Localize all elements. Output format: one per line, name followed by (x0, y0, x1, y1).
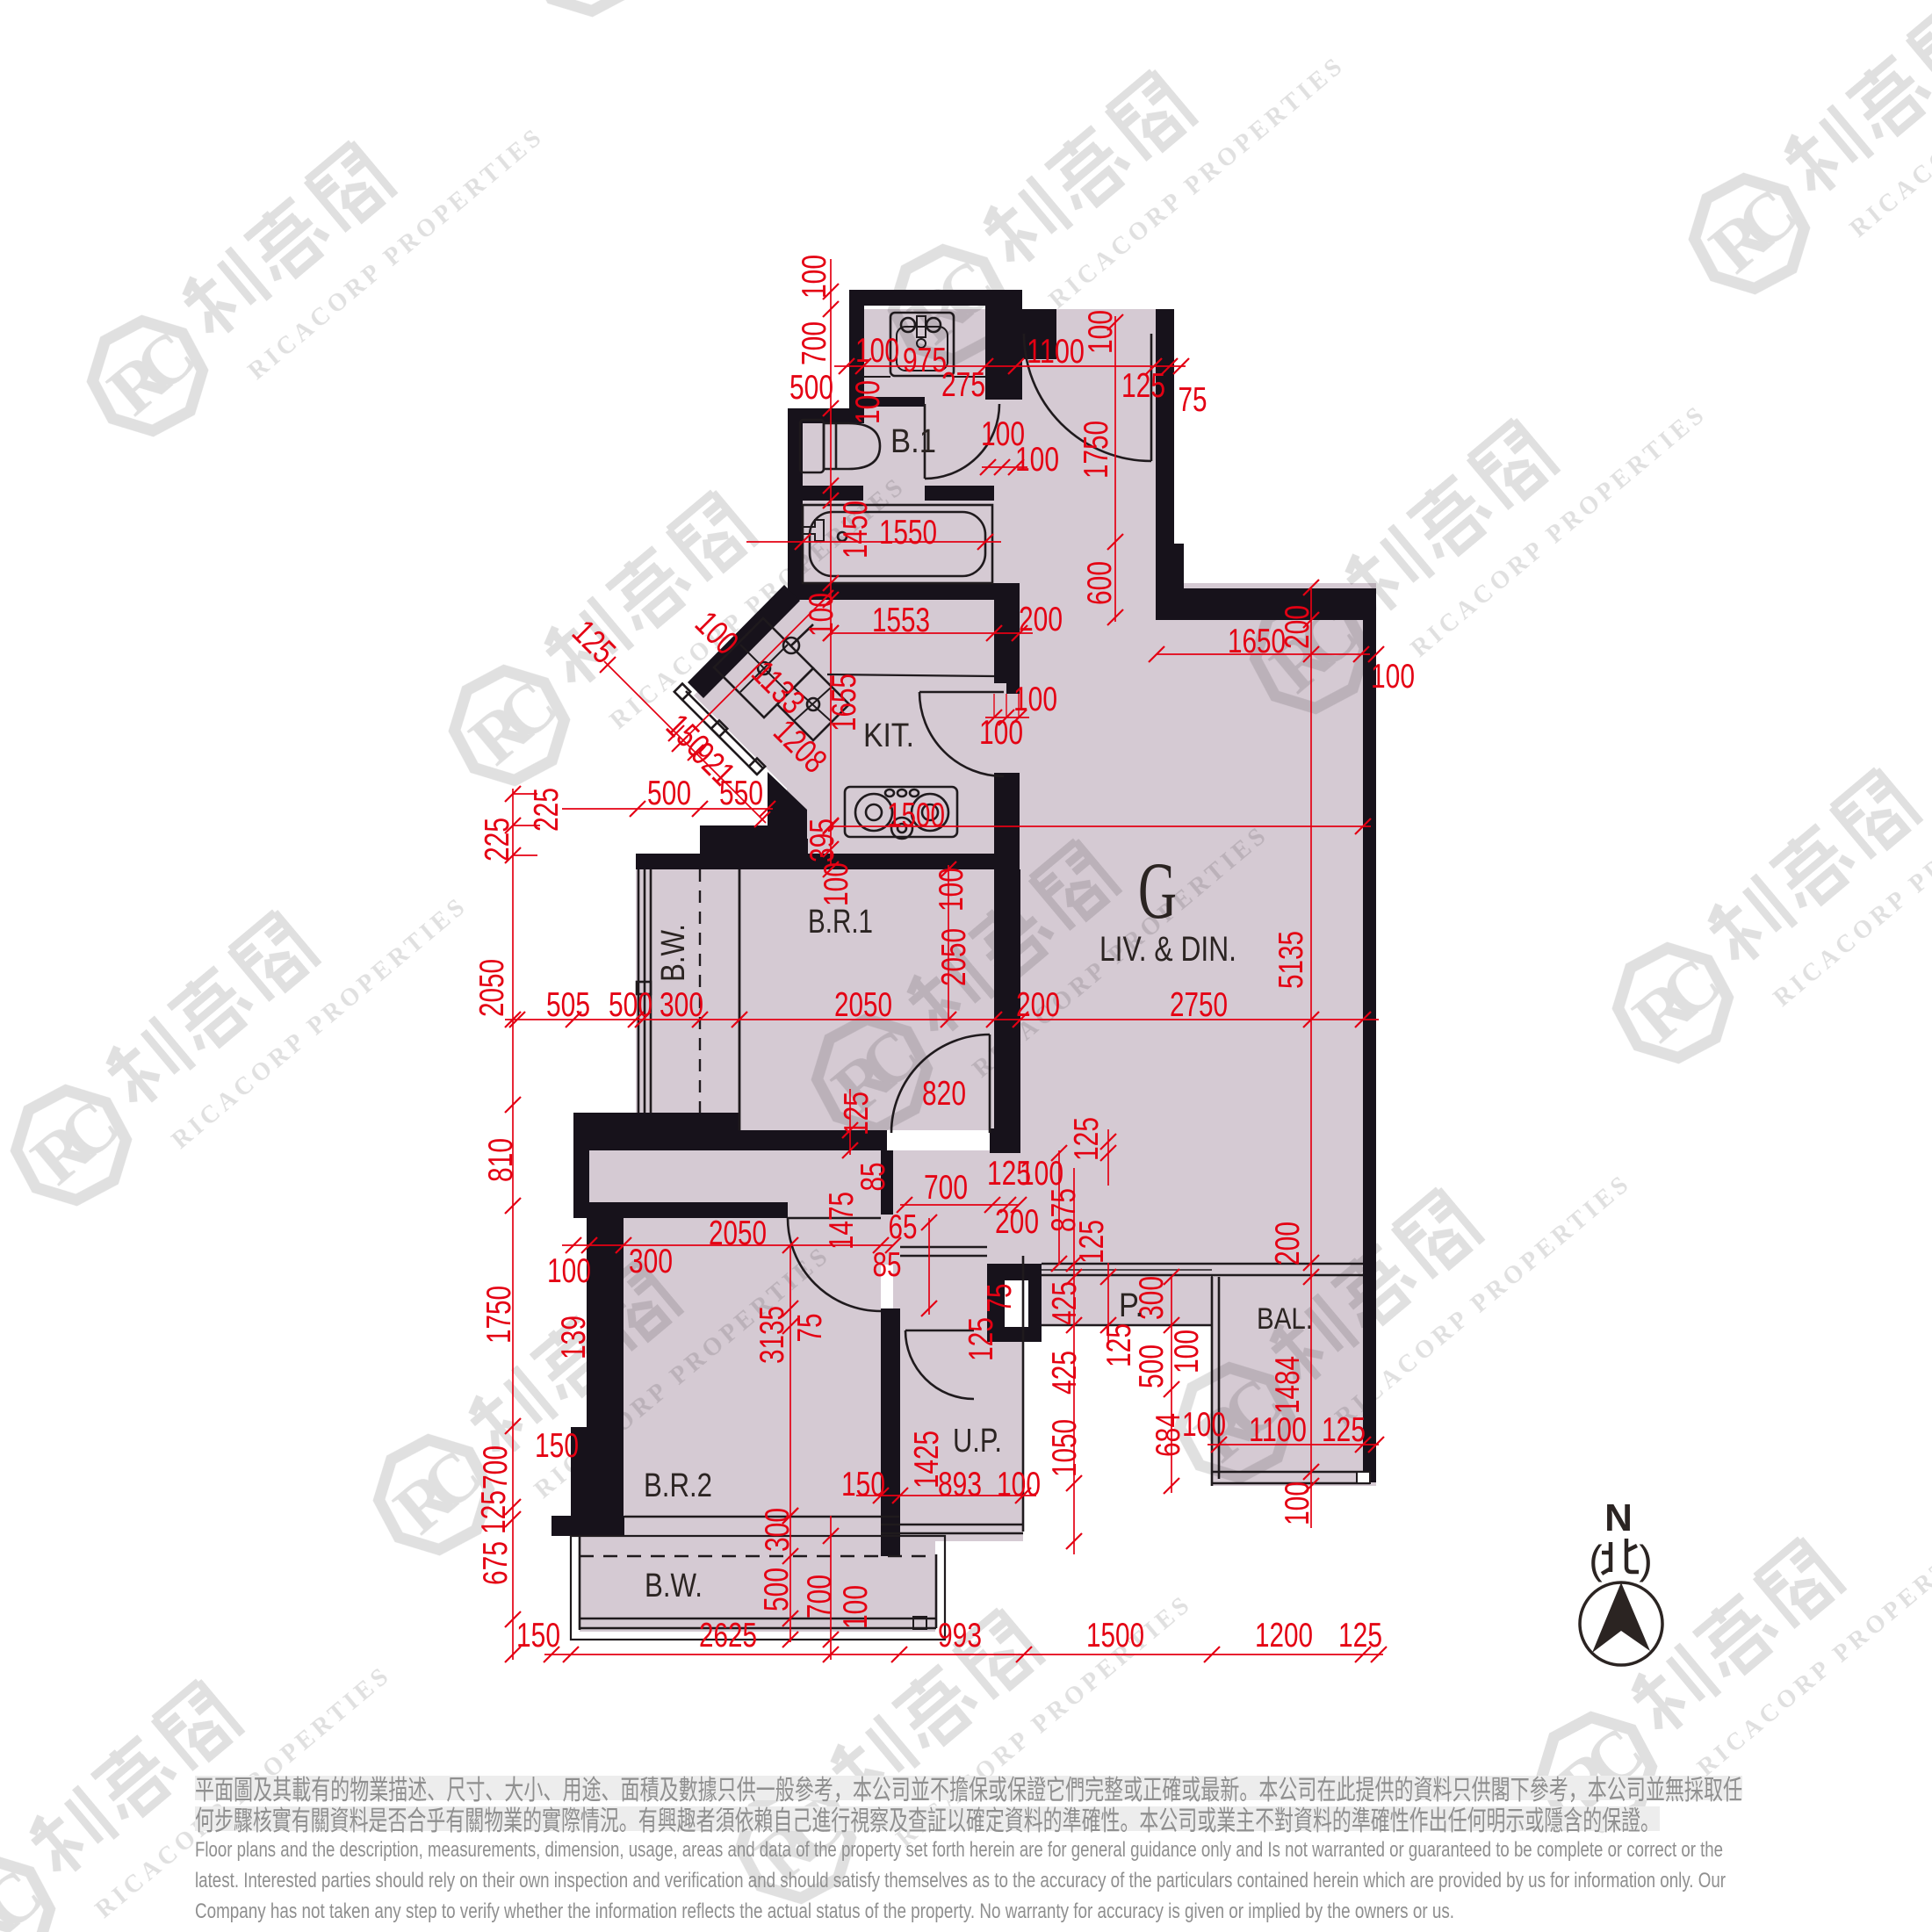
svg-text:425: 425 (1046, 1281, 1084, 1325)
svg-text:1500: 1500 (1086, 1617, 1144, 1654)
svg-text:150: 150 (516, 1617, 560, 1654)
svg-text:500: 500 (758, 1568, 796, 1611)
svg-text:505: 505 (546, 986, 590, 1024)
svg-text:150: 150 (535, 1427, 579, 1465)
svg-text:1500: 1500 (887, 797, 945, 834)
svg-text:550: 550 (719, 775, 763, 812)
svg-text:100: 100 (1279, 1481, 1316, 1525)
svg-text:75: 75 (791, 1314, 829, 1343)
svg-text:150: 150 (841, 1466, 885, 1503)
svg-text:125: 125 (1121, 367, 1165, 405)
svg-text:100: 100 (979, 714, 1023, 752)
svg-text:BAL.: BAL. (1257, 1302, 1313, 1336)
svg-text:139: 139 (555, 1316, 593, 1359)
svg-text:100: 100 (818, 862, 855, 906)
svg-text:200: 200 (1269, 1222, 1307, 1265)
svg-text:75: 75 (1179, 381, 1207, 419)
svg-text:LIV. & DIN.: LIV. & DIN. (1099, 930, 1236, 969)
svg-text:500: 500 (1133, 1344, 1171, 1388)
svg-text:700: 700 (801, 1575, 839, 1618)
svg-text:Company has not taken any step: Company has not taken any step to verify… (195, 1900, 1454, 1923)
svg-text:2750: 2750 (1170, 986, 1228, 1024)
svg-text:B.W.: B.W. (655, 924, 692, 982)
svg-text:820: 820 (922, 1075, 966, 1113)
svg-text:1450: 1450 (837, 501, 875, 559)
svg-text:225: 225 (528, 788, 566, 832)
svg-text:1750: 1750 (480, 1286, 518, 1344)
svg-text:810: 810 (482, 1138, 520, 1182)
svg-text:何步驟核實有關資料是否合乎有關物業的實際情況。有興趣者須依賴: 何步驟核實有關資料是否合乎有關物業的實際情況。有興趣者須依賴自己進行視察及查証以… (195, 1806, 1660, 1836)
svg-text:2050: 2050 (834, 986, 892, 1024)
svg-text:100: 100 (837, 1585, 875, 1629)
svg-text:225: 225 (479, 818, 516, 861)
svg-text:200: 200 (1279, 605, 1316, 649)
svg-text:100: 100 (1371, 658, 1415, 696)
svg-text:500: 500 (647, 775, 691, 812)
svg-text:395: 395 (804, 818, 841, 862)
svg-text:100: 100 (796, 255, 833, 299)
svg-text:B.R.2: B.R.2 (644, 1467, 712, 1504)
svg-text:100: 100 (849, 380, 887, 424)
svg-text:125: 125 (1322, 1411, 1366, 1449)
svg-text:300: 300 (629, 1243, 673, 1280)
svg-text:Floor plans and the descriptio: Floor plans and the description, measure… (195, 1838, 1723, 1862)
svg-text:200: 200 (1016, 986, 1060, 1024)
svg-text:75: 75 (981, 1284, 1019, 1313)
svg-text:100: 100 (1182, 1406, 1226, 1444)
svg-text:latest. Interested parties sho: latest. Interested parties should rely o… (195, 1869, 1726, 1892)
svg-text:2050: 2050 (473, 959, 511, 1017)
svg-text:100: 100 (1020, 1155, 1063, 1193)
svg-text:300: 300 (759, 1508, 797, 1552)
svg-text:N: N (1604, 1496, 1633, 1539)
svg-text:B.1: B.1 (890, 423, 936, 460)
svg-text:65: 65 (889, 1208, 918, 1246)
svg-text:893: 893 (938, 1466, 982, 1503)
svg-text:675: 675 (477, 1541, 515, 1585)
svg-text:3135: 3135 (753, 1306, 791, 1364)
svg-text:600: 600 (1081, 561, 1119, 605)
svg-text:993: 993 (938, 1617, 982, 1654)
svg-text:85: 85 (854, 1163, 892, 1192)
svg-text:100: 100 (803, 593, 840, 637)
svg-text:B.W.: B.W. (645, 1568, 703, 1604)
svg-text:100: 100 (933, 868, 970, 912)
svg-text:): ) (1639, 1537, 1652, 1582)
svg-text:200: 200 (995, 1203, 1039, 1241)
svg-text:5135: 5135 (1272, 931, 1310, 989)
svg-text:平面圖及其載有的物業描述、尺寸、大小、用途、面積及數據只供一: 平面圖及其載有的物業描述、尺寸、大小、用途、面積及數據只供一般參考，本公司並不擔… (195, 1775, 1742, 1806)
svg-text:100: 100 (855, 332, 899, 370)
svg-text:100: 100 (547, 1252, 591, 1290)
svg-text:2625: 2625 (699, 1617, 757, 1654)
svg-text:1475: 1475 (823, 1192, 861, 1250)
svg-text:1553: 1553 (872, 602, 930, 639)
svg-text:700: 700 (796, 321, 833, 365)
svg-text:700: 700 (924, 1169, 968, 1207)
svg-text:975: 975 (903, 342, 947, 379)
svg-text:200: 200 (1019, 601, 1063, 638)
svg-text:1100: 1100 (1027, 333, 1085, 371)
svg-text:125: 125 (962, 1317, 1000, 1361)
svg-text:(: ( (1589, 1537, 1603, 1582)
svg-text:125: 125 (1068, 1117, 1106, 1161)
svg-text:1750: 1750 (1078, 421, 1115, 479)
svg-text:1650: 1650 (1228, 623, 1286, 660)
svg-text:2050: 2050 (709, 1215, 767, 1252)
svg-text:700: 700 (477, 1445, 515, 1489)
svg-text:500: 500 (789, 369, 833, 407)
svg-text:85: 85 (873, 1246, 902, 1284)
svg-text:100: 100 (1168, 1330, 1206, 1373)
svg-text:1100: 1100 (1249, 1411, 1307, 1449)
svg-text:275: 275 (941, 366, 985, 404)
svg-text:125: 125 (475, 1490, 513, 1534)
svg-text:125: 125 (838, 1092, 876, 1135)
svg-text:100: 100 (1015, 441, 1059, 479)
svg-text:2050: 2050 (935, 928, 973, 986)
svg-text:300: 300 (660, 986, 703, 1024)
svg-text:500: 500 (609, 986, 652, 1024)
svg-text:100: 100 (1013, 681, 1057, 718)
svg-text:125: 125 (1338, 1617, 1382, 1654)
svg-text:P.: P. (1119, 1287, 1143, 1324)
svg-text:125: 125 (1073, 1220, 1111, 1264)
svg-text:B.R.1: B.R.1 (808, 904, 873, 941)
svg-text:KIT.: KIT. (863, 717, 914, 754)
svg-text:1484: 1484 (1269, 1356, 1307, 1414)
svg-text:1550: 1550 (879, 514, 937, 551)
svg-text:G: G (1138, 846, 1177, 935)
svg-text:1655: 1655 (825, 674, 863, 732)
svg-text:U.P.: U.P. (953, 1423, 1002, 1460)
svg-text:1050: 1050 (1046, 1419, 1084, 1477)
svg-text:425: 425 (1046, 1351, 1084, 1395)
svg-text:100: 100 (997, 1466, 1041, 1503)
svg-text:100: 100 (1082, 310, 1120, 354)
svg-text:1200: 1200 (1255, 1617, 1313, 1654)
